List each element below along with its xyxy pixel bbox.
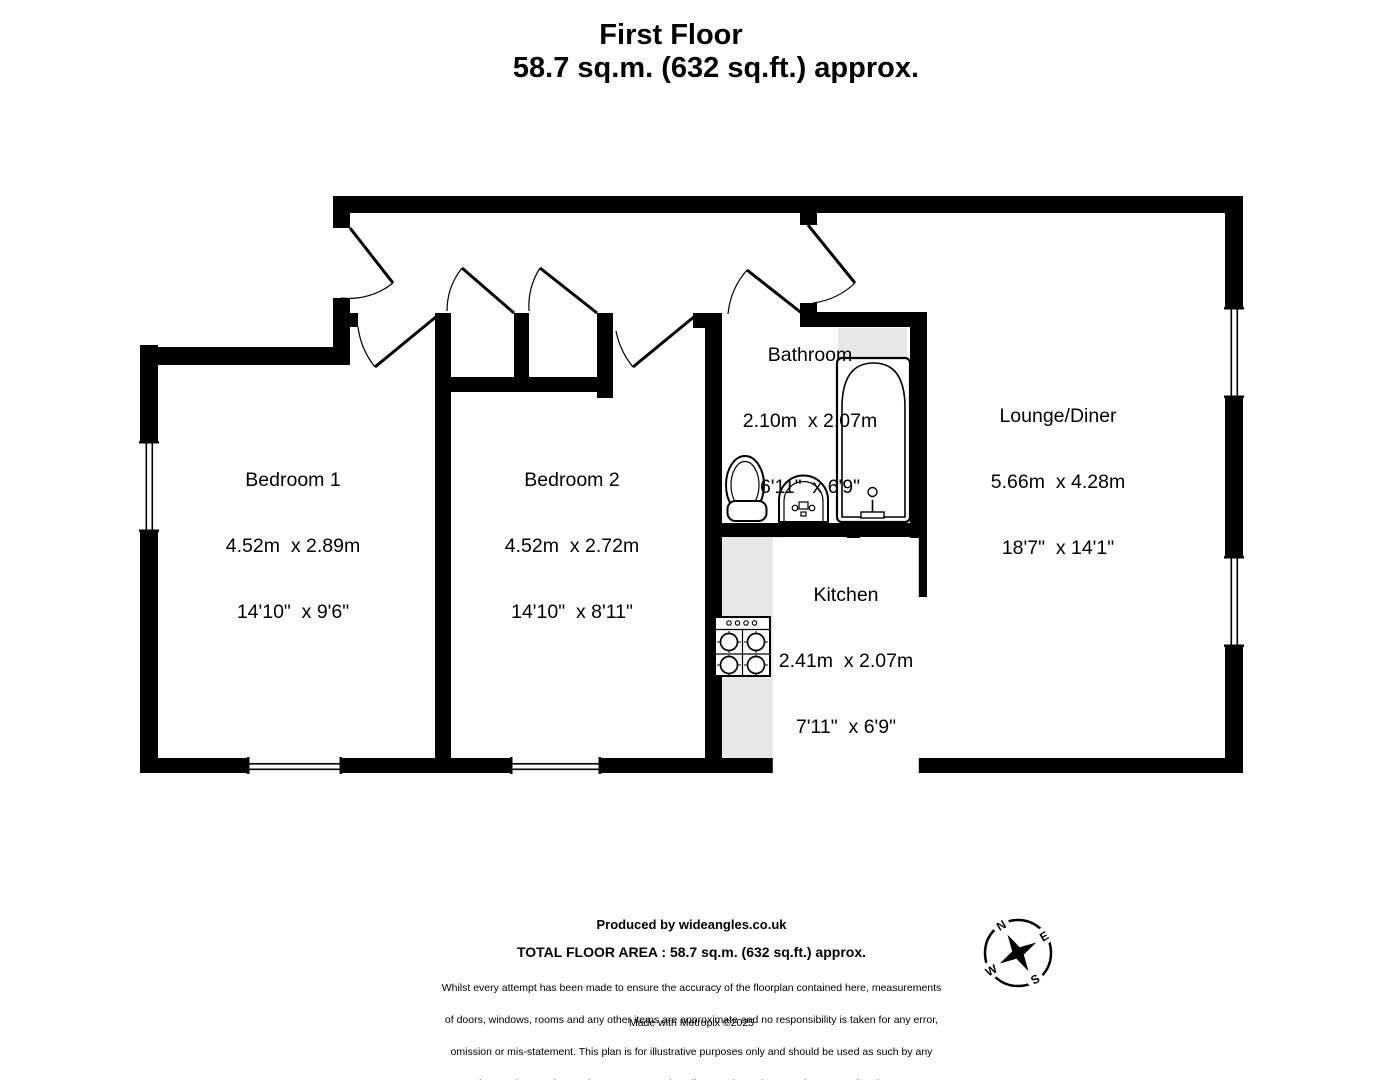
room-label-lounge: Lounge/Diner 5.66m x 4.28m 18'7" x 14'1" <box>991 361 1125 603</box>
door-bedroom1 <box>358 316 437 367</box>
window-right-lounge-lower <box>1224 556 1244 647</box>
window-left-bedroom1 <box>139 441 159 532</box>
disclaimer-line: omission or mis-statement. This plan is … <box>0 1047 1383 1058</box>
room-name: Bathroom <box>743 344 877 366</box>
window-bottom-bedroom1 <box>247 757 342 774</box>
room-label-kitchen: Kitchen 2.41m x 2.07m 7'11" x 6'9" <box>773 538 919 784</box>
wall-left <box>140 345 158 773</box>
produced-by-line: Produced by wideangles.co.uk <box>0 917 1383 932</box>
disclaimer-line: Whilst every attempt has been made to en… <box>0 983 1383 994</box>
room-size-imperial: 18'7" x 14'1" <box>991 537 1125 559</box>
window-bottom-bedroom2 <box>510 757 601 774</box>
wall-right <box>1225 196 1243 773</box>
room-size-imperial: 14'10" x 8'11" <box>505 601 639 623</box>
wall-lounge-door-stub <box>800 213 817 225</box>
door-lounge <box>808 225 855 303</box>
room-size-imperial: 7'11" x 6'9" <box>779 716 913 738</box>
room-size-metric: 2.10m x 2.07m <box>743 410 877 432</box>
room-size-metric: 4.52m x 2.72m <box>505 535 639 557</box>
floorplan-page: First Floor 58.7 sq.m. (632 sq.ft.) appr… <box>0 0 1383 1080</box>
wall-cupboard-bottom <box>435 377 613 392</box>
door-cupboard2 <box>529 268 597 313</box>
room-label-bedroom1: Bedroom 1 4.52m x 2.89m 14'10" x 9'6" <box>226 425 360 667</box>
room-size-metric: 5.66m x 4.28m <box>991 471 1125 493</box>
wall-top <box>333 196 1243 213</box>
room-size-imperial: 6'11" x 6'9" <box>743 476 877 498</box>
door-entrance <box>341 228 393 298</box>
room-name: Bedroom 1 <box>226 469 360 491</box>
made-with-line: Made with Metropix ©2025 <box>0 1017 1383 1029</box>
stove-icon <box>715 617 770 676</box>
room-label-bedroom2: Bedroom 2 4.52m x 2.72m 14'10" x 8'11" <box>505 425 639 667</box>
room-size-metric: 2.41m x 2.07m <box>779 650 913 672</box>
wall-bedroom1-top <box>140 347 350 365</box>
wall-stub-entry-top <box>333 196 350 228</box>
window-right-lounge-upper <box>1224 307 1244 398</box>
room-name: Bedroom 2 <box>505 469 639 491</box>
total-floor-area-line: TOTAL FLOOR AREA : 58.7 sq.m. (632 sq.ft… <box>0 944 1383 960</box>
wall-entry-lower <box>333 298 350 365</box>
room-name: Lounge/Diner <box>991 405 1125 427</box>
door-cupboard1 <box>447 268 514 313</box>
room-size-metric: 4.52m x 2.89m <box>226 535 360 557</box>
door-bedroom2 <box>616 316 695 367</box>
wall-hinge-notch <box>350 313 358 327</box>
room-label-bathroom: Bathroom 2.10m x 2.07m 6'11" x 6'9" <box>743 300 877 542</box>
room-size-imperial: 14'10" x 9'6" <box>226 601 360 623</box>
room-name: Kitchen <box>779 584 913 606</box>
